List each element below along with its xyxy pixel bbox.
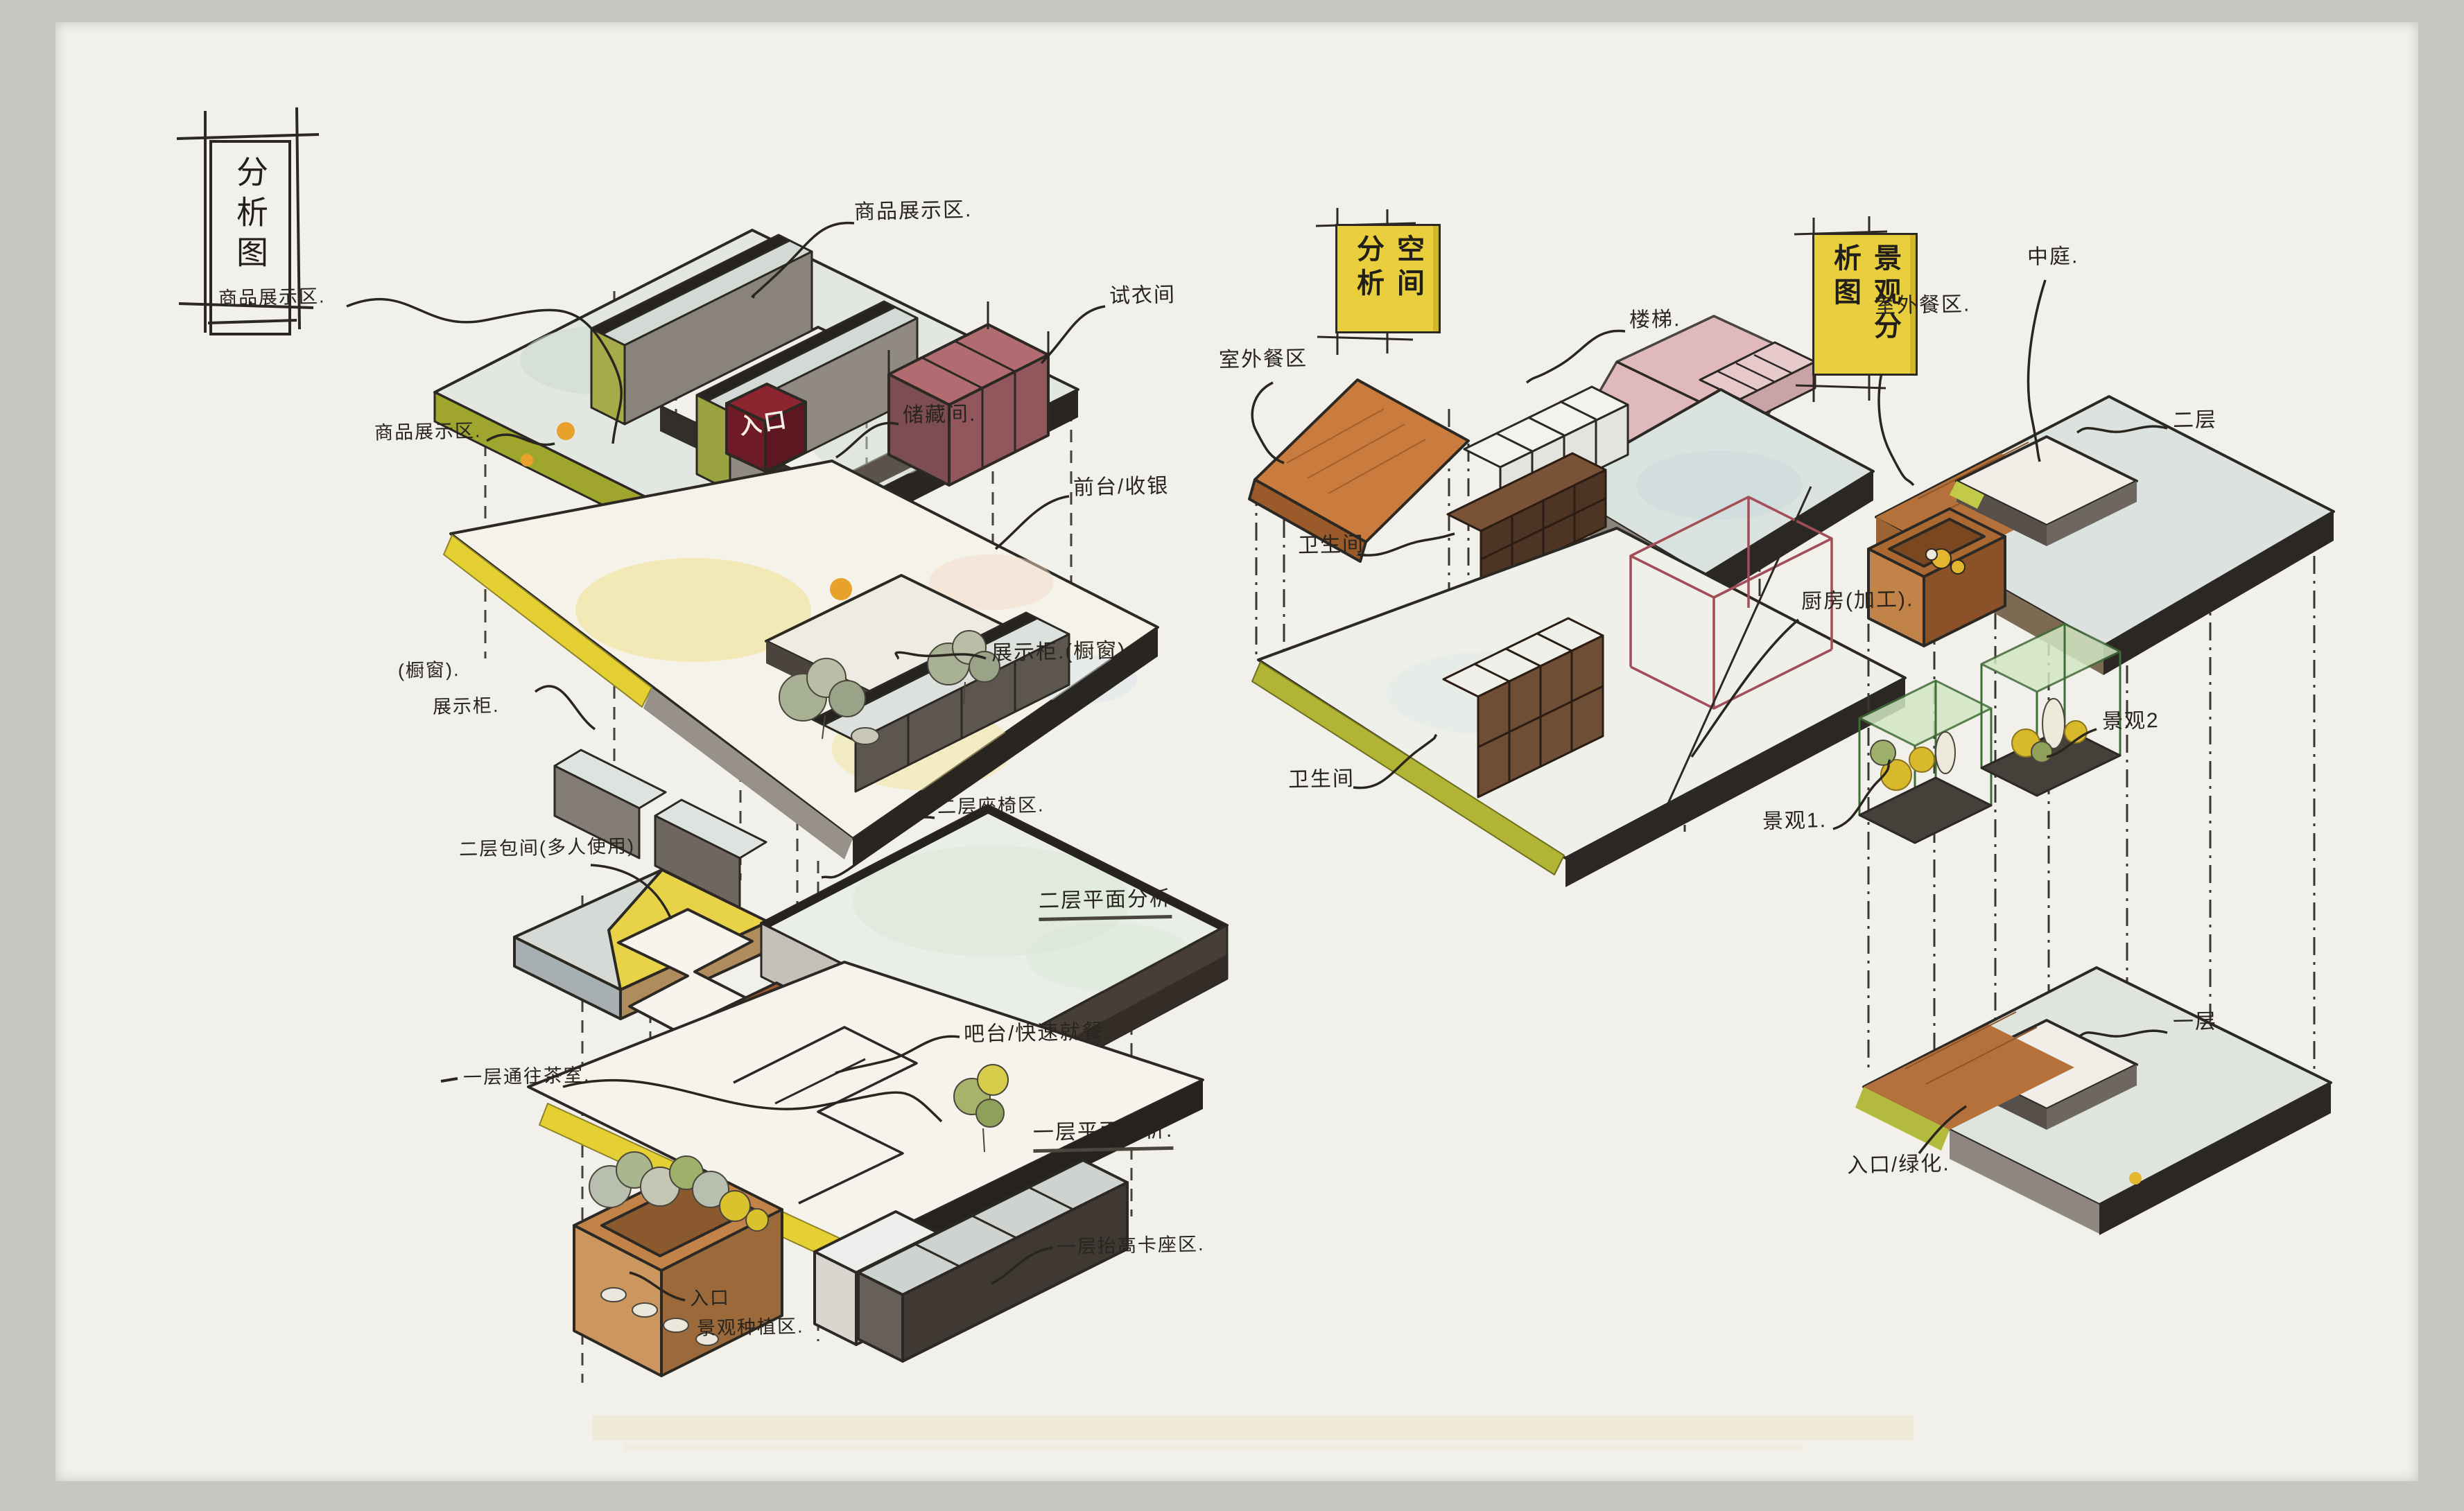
label-shop-window: (橱窗).: [398, 659, 460, 682]
label-display-cabinet-left: 展示柜.: [433, 695, 500, 718]
first-floor-plate: [1855, 968, 2331, 1235]
label-atrium: 中庭.: [2027, 245, 2079, 270]
label-kitchen: 厨房(加工).: [1801, 588, 1914, 614]
label-front-desk: 前台/收银: [1073, 475, 1170, 500]
label-storage-room: 储藏间.: [903, 403, 977, 428]
label-first-floor-plan-title: 一层平面分析.: [1033, 1119, 1174, 1153]
label-outdoor-dining-4: 室外餐区.: [1875, 293, 1971, 319]
sketch-sheet: 分析图. 商品展示区. 商品展示区. 商品展示区. 试衣间 储藏间. 前台/收银…: [0, 0, 2464, 1511]
label-display-zone-a: 商品展示区.: [218, 286, 326, 309]
landscape-box-2: [1981, 624, 2120, 796]
label-restroom-lower: 卫生间: [1288, 767, 1355, 793]
label-first-floor: 一层: [2173, 1010, 2218, 1035]
label-entrance-2: 入口: [690, 1287, 731, 1309]
axonometric-drawing: [0, 0, 2464, 1511]
label-landscape-planting: 景观种植区.: [697, 1316, 804, 1339]
label-bar-quick-dining: 吧台/快速就餐.: [964, 1020, 1111, 1047]
label-display-zone-b: 商品展示区.: [374, 420, 482, 444]
label-outdoor-dining-3: 室外餐区: [1219, 347, 1308, 373]
label-stairs: 楼梯.: [1629, 308, 1681, 333]
label-second-floor-seating: 二层座椅区.: [937, 794, 1045, 818]
label-landscape-1: 景观1.: [1762, 809, 1828, 834]
label-second-floor-plan-title: 二层平面分析: [1039, 887, 1172, 921]
label-second-floor-room: 二层包间(多人使用): [459, 835, 636, 860]
label-landscape-2: 景观2: [2102, 709, 2160, 734]
label-restroom-upper: 卫生间: [1298, 533, 1365, 559]
label-raised-booth: 一层抬高卡座区.: [1057, 1234, 1205, 1258]
label-first-floor-path: 一层通往茶室.: [463, 1065, 591, 1089]
label-second-floor: 二层: [2173, 408, 2218, 433]
highlighter-band: [593, 1415, 1914, 1450]
label-display-cabinet-right: 展示柜.(橱窗).: [991, 639, 1134, 666]
label-entrance-greening: 入口/绿化.: [1847, 1152, 1950, 1178]
label-fitting-room: 试衣间: [1109, 283, 1177, 309]
space-analysis-banner: 空间分析: [1335, 224, 1441, 333]
label-display-zone-c: 商品展示区.: [854, 198, 973, 225]
